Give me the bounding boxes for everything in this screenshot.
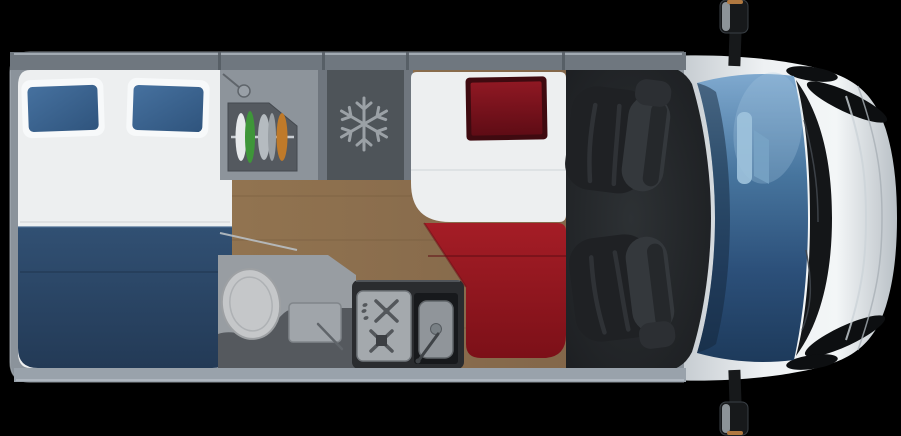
cloth-gray <box>268 113 276 161</box>
pillow-right-cushion <box>132 85 204 132</box>
floorplan-svg <box>0 0 901 436</box>
pillow-left-cushion <box>27 85 99 132</box>
burner-front-center <box>384 308 390 314</box>
mirror-top-indicator <box>727 0 743 4</box>
burner-rear-plate <box>376 335 387 346</box>
campervan-floorplan-image <box>0 0 901 436</box>
hanging-clothes <box>236 111 288 163</box>
sink-faucet-base <box>416 359 421 364</box>
washbasin <box>289 303 341 342</box>
pillow-right <box>126 78 210 139</box>
cabinet-divider-left <box>318 66 327 180</box>
double-bed <box>18 70 232 368</box>
mirror-top-stalk <box>728 28 741 66</box>
red-pillow-cushion <box>471 81 543 135</box>
mirror-top-highlight <box>722 2 730 31</box>
cloth-green <box>245 111 255 163</box>
red-pillow <box>465 76 547 140</box>
cabinets <box>220 66 413 180</box>
double-bed-blanket <box>18 227 232 368</box>
mirror-bottom-highlight <box>722 404 730 433</box>
mirror-bottom-stalk <box>728 370 741 406</box>
hob-panel <box>357 291 411 361</box>
mirror-bottom-indicator <box>727 431 743 435</box>
cloth-white <box>236 113 247 161</box>
pillow-left <box>21 78 105 139</box>
wardrobe-hinge <box>238 85 250 97</box>
cloth-orange <box>277 113 288 161</box>
kitchen <box>352 280 464 369</box>
rearview-mirror-reflection <box>737 112 752 184</box>
sink-drain <box>431 324 442 335</box>
